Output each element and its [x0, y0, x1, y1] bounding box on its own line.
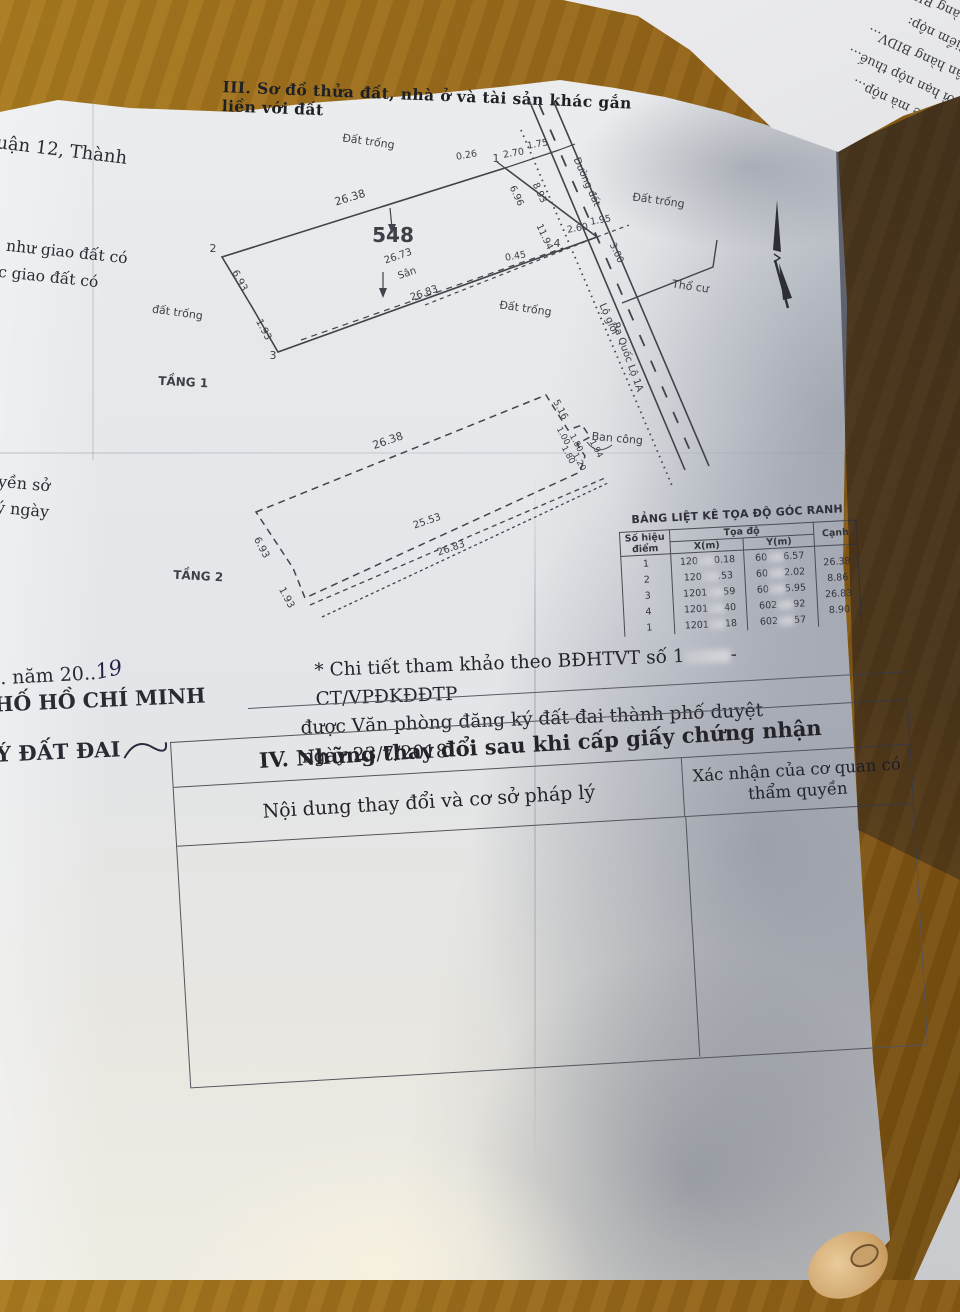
redaction	[707, 587, 723, 597]
diagram-label: Ra Quốc Lộ 1A	[610, 321, 646, 394]
diagram-label: 8.93	[530, 181, 549, 205]
diagram-label: 1.75	[526, 137, 549, 152]
diagram-label: 11.94	[534, 222, 555, 251]
diagram-label: 1.93	[276, 585, 296, 610]
col-edge-header: Cạnh	[814, 520, 858, 546]
land-label: Ý ĐẤT ĐAI	[0, 736, 121, 766]
diagram-label: TẦNG 2	[173, 565, 224, 585]
col-point-header: Số hiệu điểm	[619, 530, 670, 557]
redaction	[768, 568, 784, 578]
section4-column-divider	[685, 817, 700, 1057]
point-id: 1	[624, 618, 675, 637]
coordinate-table: BẢNG LIỆT KÊ TỌA ĐỘ GÓC RANH Số hiệu điể…	[618, 502, 862, 637]
redaction	[684, 649, 730, 664]
diagram-label: 6.96	[507, 184, 526, 208]
diagram-label: Đất trống	[342, 131, 396, 151]
diagram-label: 26.38	[371, 429, 405, 452]
diagram-label: 2	[210, 242, 217, 255]
diagram-label: 3.00	[607, 241, 626, 265]
redaction	[708, 603, 724, 613]
redaction	[702, 571, 718, 581]
diagram-label: 6.93	[251, 535, 271, 560]
diagram-label: TẦNG 1	[158, 371, 209, 391]
pen-flourish	[122, 734, 169, 762]
redaction	[769, 584, 785, 594]
diagram-label: 2.70	[502, 146, 525, 161]
diagram-label: 3	[270, 349, 277, 362]
diagram-label: 1.95	[589, 213, 612, 228]
diagram-label: 5.16	[550, 398, 570, 422]
diagram-label: Đất trống	[632, 190, 686, 210]
redaction	[698, 556, 714, 566]
left-fragment-line4: ý ngày	[0, 498, 50, 522]
fingernail	[846, 1239, 882, 1272]
road	[521, 100, 709, 488]
diagram-label: 6.93	[229, 268, 249, 293]
section4-table: IV. Những thay đổi sau khi cấp giấy chứn…	[170, 699, 928, 1089]
diagram-label: Đường đất	[571, 155, 603, 208]
redaction	[767, 552, 783, 562]
diagram-label: 1.93	[253, 317, 273, 342]
diagram-label: Đất trống	[499, 298, 553, 318]
year-handwritten: 19	[93, 655, 124, 684]
diagram-label: 26.38	[333, 187, 367, 209]
diagram-label: 548	[372, 223, 414, 247]
diagram-label: Thổ cư	[670, 277, 710, 295]
diagram-label: Sân	[396, 264, 418, 281]
diagram-label: đất trống	[151, 303, 203, 323]
redaction	[778, 615, 794, 625]
diagram-label: 4	[554, 237, 561, 250]
diagram-label: 1	[493, 152, 500, 165]
redaction	[777, 599, 793, 609]
diagram-label: 25.53	[412, 512, 443, 532]
section4-empty-body	[177, 804, 927, 1087]
diagram-label: 26.73	[383, 247, 414, 267]
redaction	[709, 619, 725, 629]
diagram-label: 26.83	[436, 539, 467, 559]
diagram-label: 0.26	[455, 148, 478, 163]
coordinate-table-grid: Số hiệu điểm Tọa độ Cạnh X(m) Y(m) 1 120…	[619, 520, 862, 637]
north-arrow-icon	[773, 200, 792, 308]
